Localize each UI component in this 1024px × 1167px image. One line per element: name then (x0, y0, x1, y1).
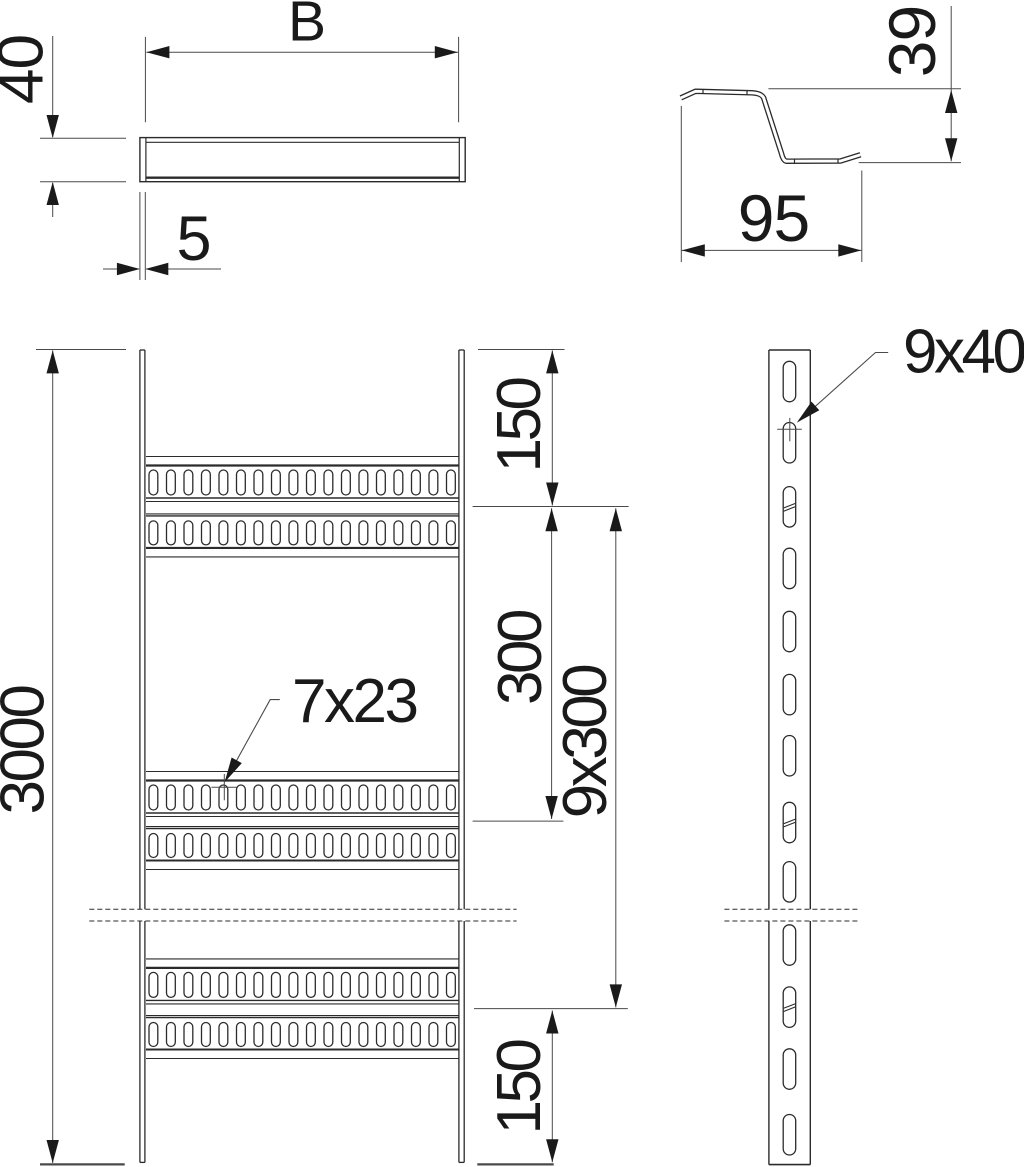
svg-text:300: 300 (486, 610, 555, 705)
svg-text:150: 150 (485, 378, 554, 473)
svg-text:9x300: 9x300 (551, 665, 620, 818)
svg-text:7x23: 7x23 (292, 667, 416, 736)
svg-text:3000: 3000 (0, 686, 58, 815)
svg-text:95: 95 (738, 181, 809, 255)
svg-text:40: 40 (0, 35, 56, 104)
svg-text:5: 5 (176, 204, 211, 274)
svg-text:39: 39 (875, 6, 949, 77)
svg-text:B: B (288, 0, 326, 54)
svg-text:150: 150 (485, 1040, 554, 1135)
svg-text:9x40: 9x40 (903, 318, 1024, 387)
